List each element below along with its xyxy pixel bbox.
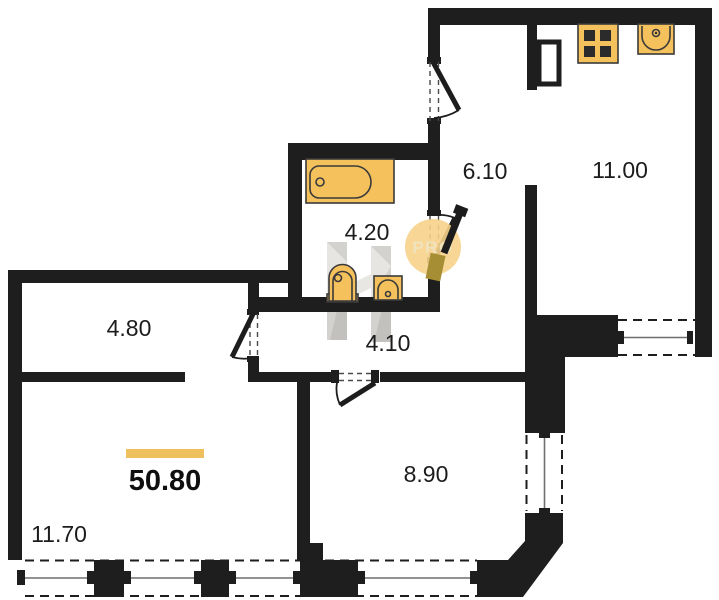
room-label-kitchen-living: 11.00 — [592, 157, 648, 183]
door-stop — [371, 370, 379, 383]
window-stop — [17, 570, 25, 585]
wall — [525, 315, 565, 433]
wall-chamfer — [477, 513, 563, 597]
wall — [428, 25, 440, 62]
room-label-living-room: 11.70 — [31, 521, 87, 547]
wall — [527, 25, 537, 90]
window-stop — [87, 571, 94, 584]
bedroom-door-arc — [336, 382, 340, 405]
window-stop — [618, 331, 624, 344]
bathroom-door-arc — [434, 215, 455, 218]
wall — [288, 143, 440, 160]
wall — [94, 560, 124, 597]
window-stop — [539, 508, 550, 515]
window-stop — [358, 571, 365, 584]
wall — [8, 270, 302, 283]
stove-icon — [578, 24, 618, 63]
floor-plan-canvas: PRO 6.10 11.00 4.20 4.10 4.80 8.90 11.70… — [0, 0, 719, 600]
bathtub-icon — [306, 159, 394, 203]
wall — [380, 372, 527, 382]
window-stop — [687, 331, 693, 344]
wall — [300, 560, 358, 597]
window-stop — [293, 571, 300, 584]
accent-bar — [126, 449, 204, 458]
window-stop — [124, 571, 131, 584]
total-area-label: 50.80 — [129, 465, 202, 497]
window-stop — [194, 571, 201, 584]
wall — [297, 543, 323, 560]
windows — [25, 320, 695, 596]
total-area: 50.80 — [126, 449, 204, 497]
room-label-entry-hall: 6.10 — [463, 158, 508, 184]
entrance-door-arc — [434, 110, 459, 118]
wall — [8, 270, 22, 560]
floor-plan: PRO 6.10 11.00 4.20 4.10 4.80 8.90 11.70… — [0, 0, 719, 600]
wall — [22, 372, 185, 382]
wall — [297, 382, 310, 543]
wall — [428, 160, 440, 215]
room-label-hallway: 4.80 — [107, 315, 152, 341]
window-stop — [470, 571, 477, 584]
toilet-icon — [327, 265, 358, 303]
sink-icon — [374, 276, 402, 300]
walls — [8, 8, 712, 597]
wall — [428, 8, 712, 25]
bedroom-door-leaf — [340, 383, 375, 405]
window-stop — [539, 431, 550, 438]
kitchen-sink-icon — [638, 24, 674, 54]
entrance-door-leaf — [433, 62, 459, 110]
wall — [201, 560, 229, 597]
room-label-bedroom: 8.90 — [404, 461, 449, 487]
door-stop — [331, 370, 339, 383]
room-label-bathroom: 4.20 — [345, 219, 390, 245]
wall — [248, 372, 332, 382]
ventilation-shaft-icon — [539, 42, 559, 84]
room-label-corridor: 4.10 — [366, 330, 411, 356]
window-stop — [229, 571, 236, 584]
wall — [695, 25, 712, 357]
wall — [288, 143, 302, 312]
